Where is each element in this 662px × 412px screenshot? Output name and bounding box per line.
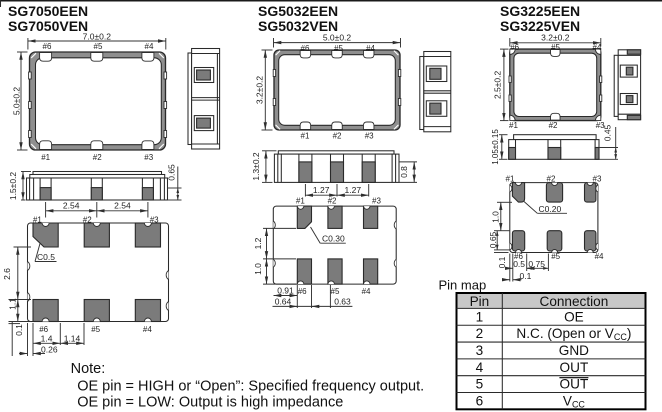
svg-text:2.5±0.2: 2.5±0.2 bbox=[492, 70, 502, 99]
svg-text:0.75: 0.75 bbox=[528, 259, 545, 269]
svg-text:1.3±0.2: 1.3±0.2 bbox=[251, 152, 261, 181]
svg-text:#4: #4 bbox=[145, 42, 154, 51]
svg-text:#3: #3 bbox=[144, 153, 153, 162]
svg-text:Note:: Note: bbox=[71, 361, 106, 377]
svg-text:3.2±0.2: 3.2±0.2 bbox=[255, 76, 265, 105]
svg-text:#6: #6 bbox=[298, 287, 307, 296]
svg-text:#2: #2 bbox=[93, 153, 102, 162]
svg-text:1.0: 1.0 bbox=[490, 211, 500, 223]
svg-text:#5: #5 bbox=[331, 287, 340, 296]
svg-text:#2: #2 bbox=[328, 196, 337, 205]
svg-text:0.64: 0.64 bbox=[275, 297, 292, 307]
svg-text:0.1: 0.1 bbox=[520, 271, 532, 281]
svg-text:1.4: 1.4 bbox=[41, 333, 53, 343]
svg-text:OE: OE bbox=[564, 309, 584, 324]
svg-text:#1: #1 bbox=[506, 174, 515, 183]
svg-text:Pin: Pin bbox=[470, 294, 490, 309]
svg-text:5.0±0.2: 5.0±0.2 bbox=[12, 87, 22, 116]
svg-text:3: 3 bbox=[476, 343, 484, 358]
svg-text:1.27: 1.27 bbox=[313, 185, 330, 195]
svg-text:0.8: 0.8 bbox=[399, 166, 409, 178]
svg-text:#5: #5 bbox=[551, 252, 560, 261]
svg-text:#2: #2 bbox=[547, 174, 556, 183]
svg-text:0.91: 0.91 bbox=[277, 286, 294, 296]
svg-text:0.65: 0.65 bbox=[167, 164, 177, 181]
svg-text:2: 2 bbox=[476, 326, 484, 341]
svg-text:C0.20: C0.20 bbox=[539, 204, 562, 214]
svg-text:2.6: 2.6 bbox=[2, 268, 12, 280]
svg-text:#3: #3 bbox=[372, 196, 381, 205]
svg-text:#2: #2 bbox=[549, 121, 558, 130]
svg-text:SG5032EEN: SG5032EEN bbox=[258, 3, 338, 19]
svg-text:C0.5: C0.5 bbox=[37, 252, 55, 262]
svg-text:1.0: 1.0 bbox=[253, 263, 263, 275]
svg-text:0.63: 0.63 bbox=[334, 297, 351, 307]
svg-text:5: 5 bbox=[476, 377, 484, 392]
svg-text:1: 1 bbox=[476, 309, 484, 324]
svg-text:C0.30: C0.30 bbox=[322, 234, 345, 244]
svg-text:7.0±0.2: 7.0±0.2 bbox=[83, 31, 112, 41]
svg-text:#3: #3 bbox=[365, 132, 374, 141]
svg-text:GND: GND bbox=[559, 343, 589, 358]
svg-text:#6: #6 bbox=[514, 252, 523, 261]
svg-text:#5: #5 bbox=[551, 43, 560, 52]
svg-text:0.1: 0.1 bbox=[497, 256, 507, 268]
svg-text:#6: #6 bbox=[510, 43, 519, 52]
svg-text:OE pin = HIGH or “Open”: Speci: OE pin = HIGH or “Open”: Specified frequ… bbox=[77, 378, 424, 394]
svg-text:0.26: 0.26 bbox=[41, 344, 58, 354]
svg-text:#1: #1 bbox=[41, 153, 50, 162]
svg-text:#5: #5 bbox=[94, 42, 103, 51]
svg-text:#5: #5 bbox=[91, 325, 100, 334]
svg-text:0.65: 0.65 bbox=[488, 231, 498, 248]
svg-text:6: 6 bbox=[476, 393, 484, 408]
svg-text:OE pin = LOW: Output is high i: OE pin = LOW: Output is high impedance bbox=[77, 394, 343, 410]
svg-text:1.5±0.2: 1.5±0.2 bbox=[8, 172, 18, 201]
svg-text:OUT: OUT bbox=[560, 377, 589, 392]
svg-text:5.0±0.2: 5.0±0.2 bbox=[323, 32, 352, 42]
svg-text:#3: #3 bbox=[593, 174, 602, 183]
svg-text:SG3225EEN: SG3225EEN bbox=[500, 3, 580, 19]
svg-text:OUT: OUT bbox=[560, 360, 589, 375]
svg-text:SG7050EEN: SG7050EEN bbox=[8, 3, 88, 19]
svg-text:1.2: 1.2 bbox=[253, 237, 263, 249]
svg-text:1.14: 1.14 bbox=[64, 333, 81, 343]
svg-text:#1: #1 bbox=[301, 132, 310, 141]
svg-text:1.27: 1.27 bbox=[345, 185, 362, 195]
svg-text:2.54: 2.54 bbox=[63, 201, 80, 211]
svg-text:#6: #6 bbox=[301, 44, 310, 53]
svg-text:4: 4 bbox=[476, 360, 484, 375]
svg-text:1.1: 1.1 bbox=[8, 298, 18, 310]
svg-text:#4: #4 bbox=[366, 44, 375, 53]
svg-text:#4: #4 bbox=[143, 325, 152, 334]
svg-text:0.45: 0.45 bbox=[603, 124, 613, 141]
svg-text:#4: #4 bbox=[595, 252, 604, 261]
svg-text:#1: #1 bbox=[509, 121, 518, 130]
svg-text:2.54: 2.54 bbox=[114, 201, 131, 211]
svg-text:SG7050VEN: SG7050VEN bbox=[8, 18, 88, 34]
svg-text:#2: #2 bbox=[333, 132, 342, 141]
svg-text:#5: #5 bbox=[334, 44, 343, 53]
svg-text:Pin map: Pin map bbox=[439, 277, 487, 292]
svg-text:Connection: Connection bbox=[540, 294, 609, 309]
svg-text:3.2±0.2: 3.2±0.2 bbox=[541, 33, 570, 43]
svg-text:#6: #6 bbox=[39, 325, 48, 334]
svg-text:#6: #6 bbox=[43, 42, 52, 51]
svg-text:1.05±0.15: 1.05±0.15 bbox=[491, 129, 500, 165]
svg-text:#4: #4 bbox=[362, 287, 371, 296]
svg-text:#1: #1 bbox=[296, 196, 305, 205]
svg-text:0.1: 0.1 bbox=[14, 324, 24, 336]
